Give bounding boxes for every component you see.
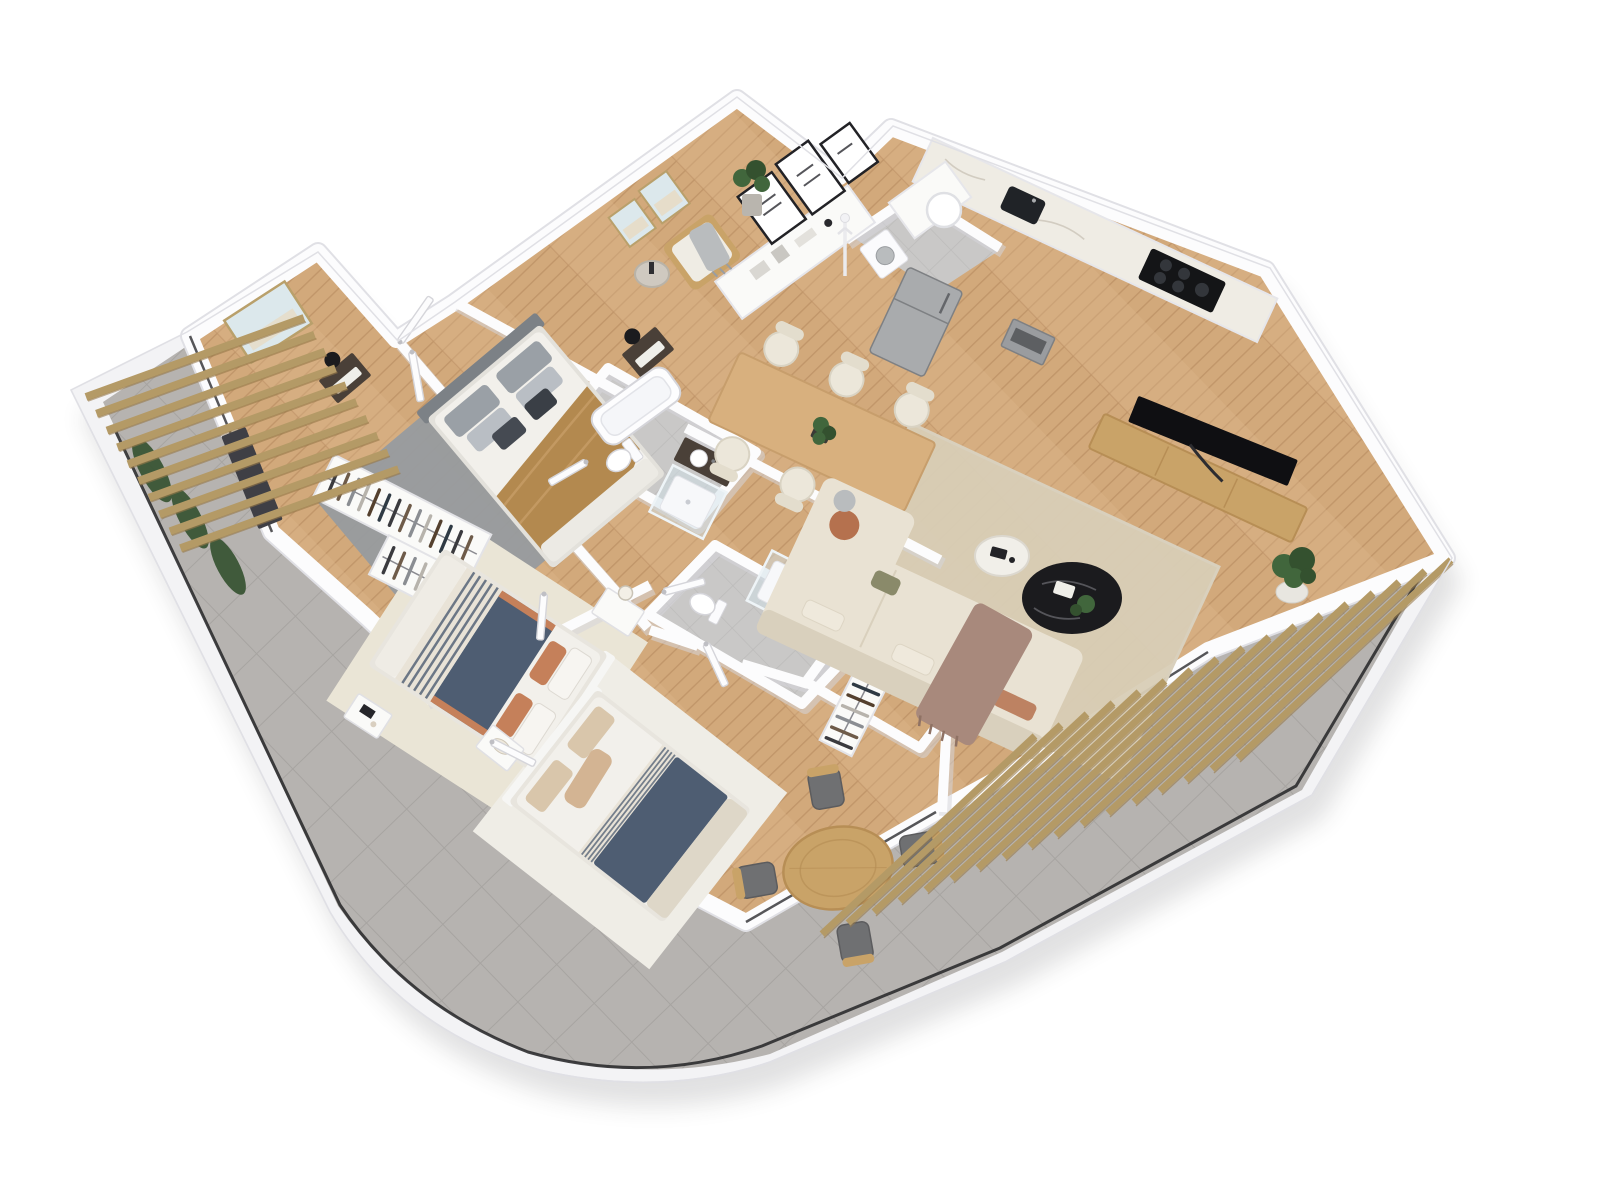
floorplan-render bbox=[0, 0, 1600, 1200]
floorplan-stage bbox=[0, 0, 1600, 1200]
water-heater bbox=[927, 193, 961, 227]
coffee-table-black bbox=[1022, 562, 1122, 634]
side-table-white bbox=[975, 536, 1029, 576]
round-side-table bbox=[635, 261, 669, 287]
